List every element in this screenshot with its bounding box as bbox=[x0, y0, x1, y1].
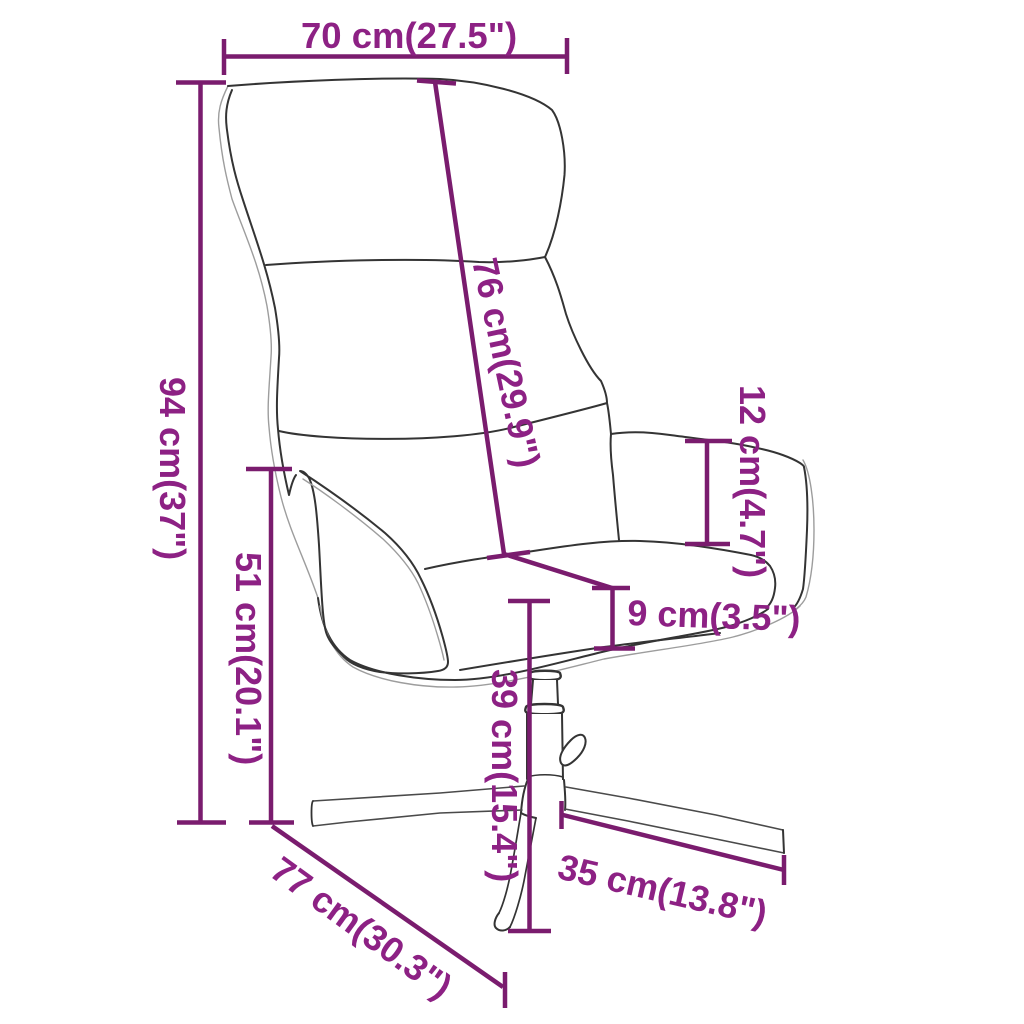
svg-text:39 cm(15.4"): 39 cm(15.4") bbox=[484, 669, 525, 882]
svg-text:94 cm(37"): 94 cm(37") bbox=[152, 377, 193, 560]
svg-text:70 cm(27.5"): 70 cm(27.5") bbox=[301, 15, 517, 56]
svg-text:9 cm(3.5"): 9 cm(3.5") bbox=[627, 592, 801, 639]
svg-text:51 cm(20.1"): 51 cm(20.1") bbox=[228, 552, 269, 765]
svg-text:12 cm(4.7"): 12 cm(4.7") bbox=[732, 385, 773, 578]
